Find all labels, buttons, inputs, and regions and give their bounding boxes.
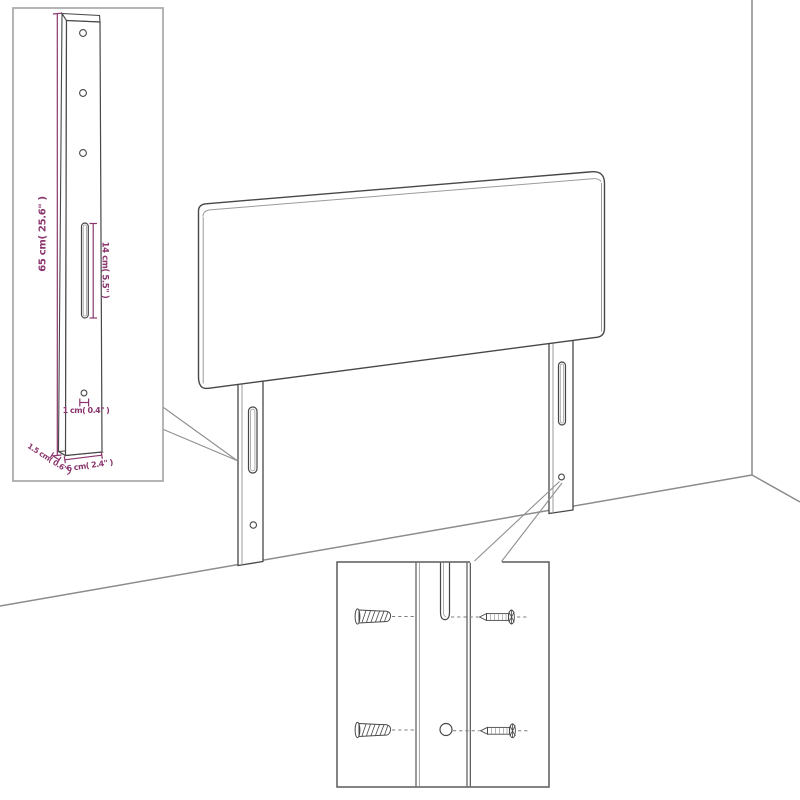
headboard-panel: [199, 172, 605, 389]
headboard-leg-left: [238, 379, 263, 566]
headboard-outline: [199, 172, 605, 389]
callout-line-4: [502, 483, 563, 562]
dimension-label-leg-height: 65 cm( 25.6" ): [38, 196, 49, 272]
diagram-canvas: 65 cm( 25.6" ) 14 cm( 5.5" ) 1 cm( 0.4" …: [0, 0, 800, 800]
inset-mounting-detail-box: [337, 562, 549, 787]
dimension-label-slot-length: 14 cm( 5.5" ): [100, 242, 110, 299]
dim65-tick-top: [53, 13, 62, 14]
floor-line-right: [752, 475, 800, 502]
inset-leg-dimensions-box: 65 cm( 25.6" ) 14 cm( 5.5" ) 1 cm( 0.4" …: [13, 8, 163, 481]
inset-leg-drawing: [59, 14, 103, 456]
callout-lines-left-inset: [164, 408, 238, 461]
product-dimension-diagram: 65 cm( 25.6" ) 14 cm( 5.5" ) 1 cm( 0.4" …: [0, 0, 800, 800]
dimension-label-hole-size: 1 cm( 0.4" ): [63, 406, 110, 415]
